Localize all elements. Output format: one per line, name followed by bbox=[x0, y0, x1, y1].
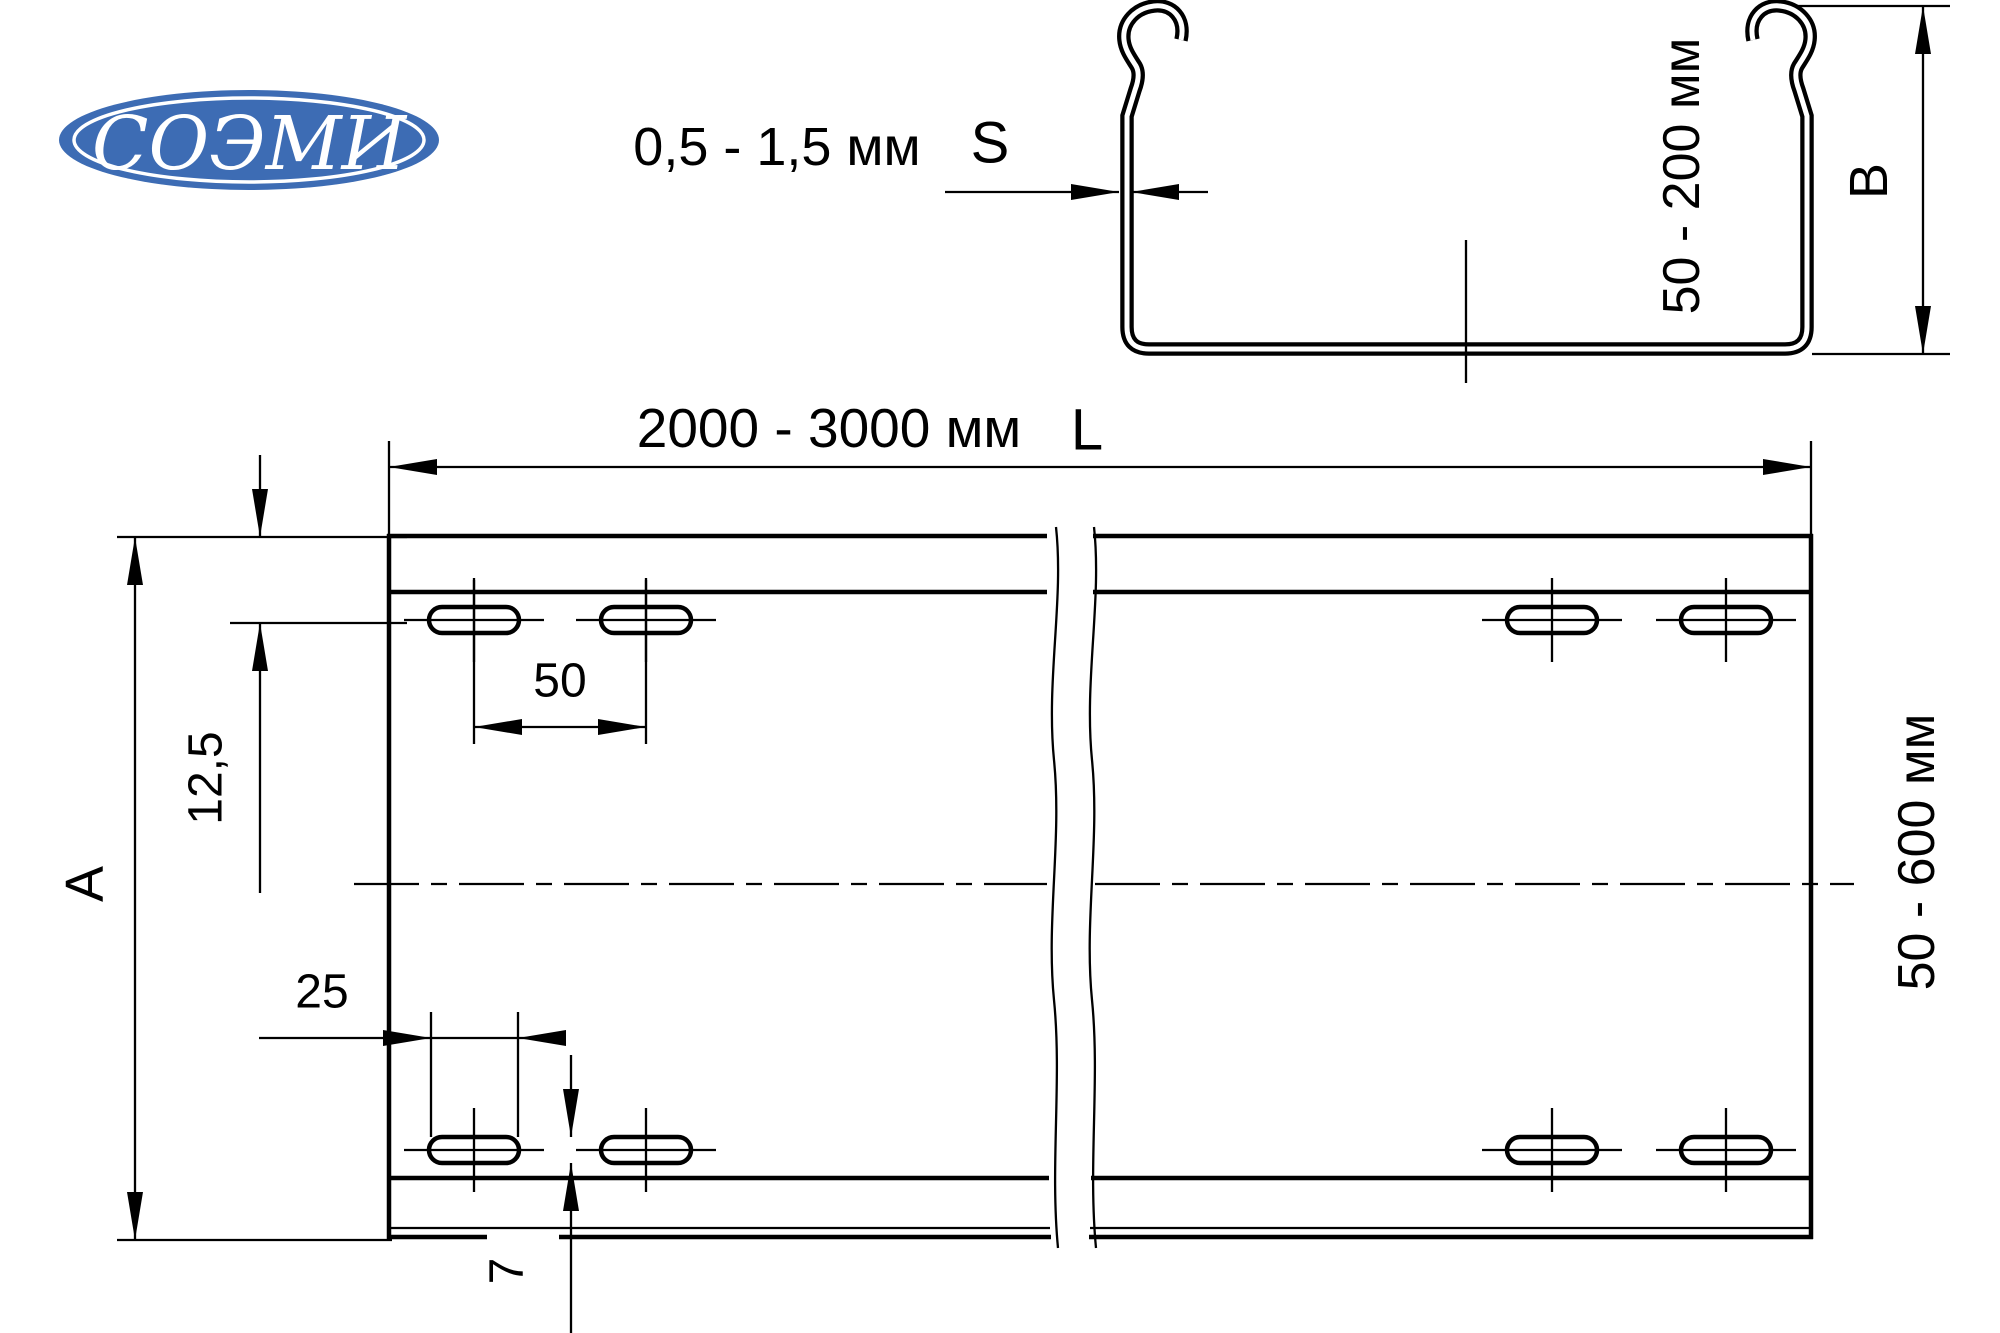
arrow-up-icon bbox=[563, 1163, 579, 1211]
row-offset-label: 12,5 bbox=[180, 731, 233, 824]
thickness-symbol-label: S bbox=[971, 111, 1010, 176]
width-range-label: 50 - 600 мм bbox=[1888, 714, 1946, 991]
dimension-slot-width: 7 bbox=[481, 1055, 580, 1333]
drawing-page: 2000 - 3000 мм L A 12,5 bbox=[0, 0, 2000, 1333]
hole-spacing-label: 50 bbox=[533, 655, 586, 708]
dimension-width: A bbox=[55, 537, 407, 1240]
arrow-left-icon bbox=[474, 719, 522, 735]
arrow-right-icon bbox=[598, 719, 646, 735]
arrow-up-icon bbox=[1915, 6, 1931, 54]
break-line-right bbox=[1090, 527, 1096, 1248]
width-symbol-label: A bbox=[55, 866, 115, 902]
arrow-right-icon bbox=[1763, 459, 1811, 475]
arrow-left-icon bbox=[389, 459, 437, 475]
plan-view-outline bbox=[387, 534, 1813, 1239]
arrow-left-icon bbox=[1131, 184, 1179, 200]
arrow-down-icon bbox=[127, 1192, 143, 1240]
dimension-slot-length: 25 bbox=[259, 966, 566, 1138]
arrow-up-icon bbox=[127, 537, 143, 585]
arrow-right-icon bbox=[383, 1030, 431, 1046]
length-symbol-label: L bbox=[1071, 398, 1103, 463]
slot-length-label: 25 bbox=[295, 966, 348, 1019]
logo: СОЭМИ bbox=[59, 90, 439, 190]
side-height-symbol-label: B bbox=[1839, 163, 1899, 199]
thickness-range-label: 0,5 - 1,5 мм bbox=[633, 117, 920, 177]
arrow-down-icon bbox=[1915, 306, 1931, 354]
dimension-row-offset: 12,5 bbox=[180, 455, 408, 893]
plan-view: 2000 - 3000 мм L A 12,5 bbox=[55, 397, 1946, 1333]
drawing-root: 2000 - 3000 мм L A 12,5 bbox=[55, 6, 1950, 1333]
arrow-down-icon bbox=[252, 489, 268, 537]
profile-section-view: 0,5 - 1,5 мм S 50 - 200 мм B bbox=[633, 6, 1950, 383]
break-lines bbox=[1052, 527, 1096, 1248]
length-range-label: 2000 - 3000 мм bbox=[637, 397, 1022, 459]
break-line-left bbox=[1052, 527, 1058, 1248]
side-height-range-label: 50 - 200 мм bbox=[1653, 38, 1711, 315]
arrow-down-icon bbox=[563, 1089, 579, 1137]
arrow-right-icon bbox=[1071, 184, 1119, 200]
dimension-hole-spacing: 50 bbox=[474, 580, 646, 744]
technical-drawing: 2000 - 3000 мм L A 12,5 bbox=[0, 0, 2000, 1333]
arrow-left-icon bbox=[518, 1030, 566, 1046]
slot-width-label: 7 bbox=[481, 1258, 534, 1285]
dimension-length: 2000 - 3000 мм L bbox=[389, 397, 1811, 534]
arrow-up-icon bbox=[252, 623, 268, 671]
logo-text: СОЭМИ bbox=[92, 101, 408, 187]
